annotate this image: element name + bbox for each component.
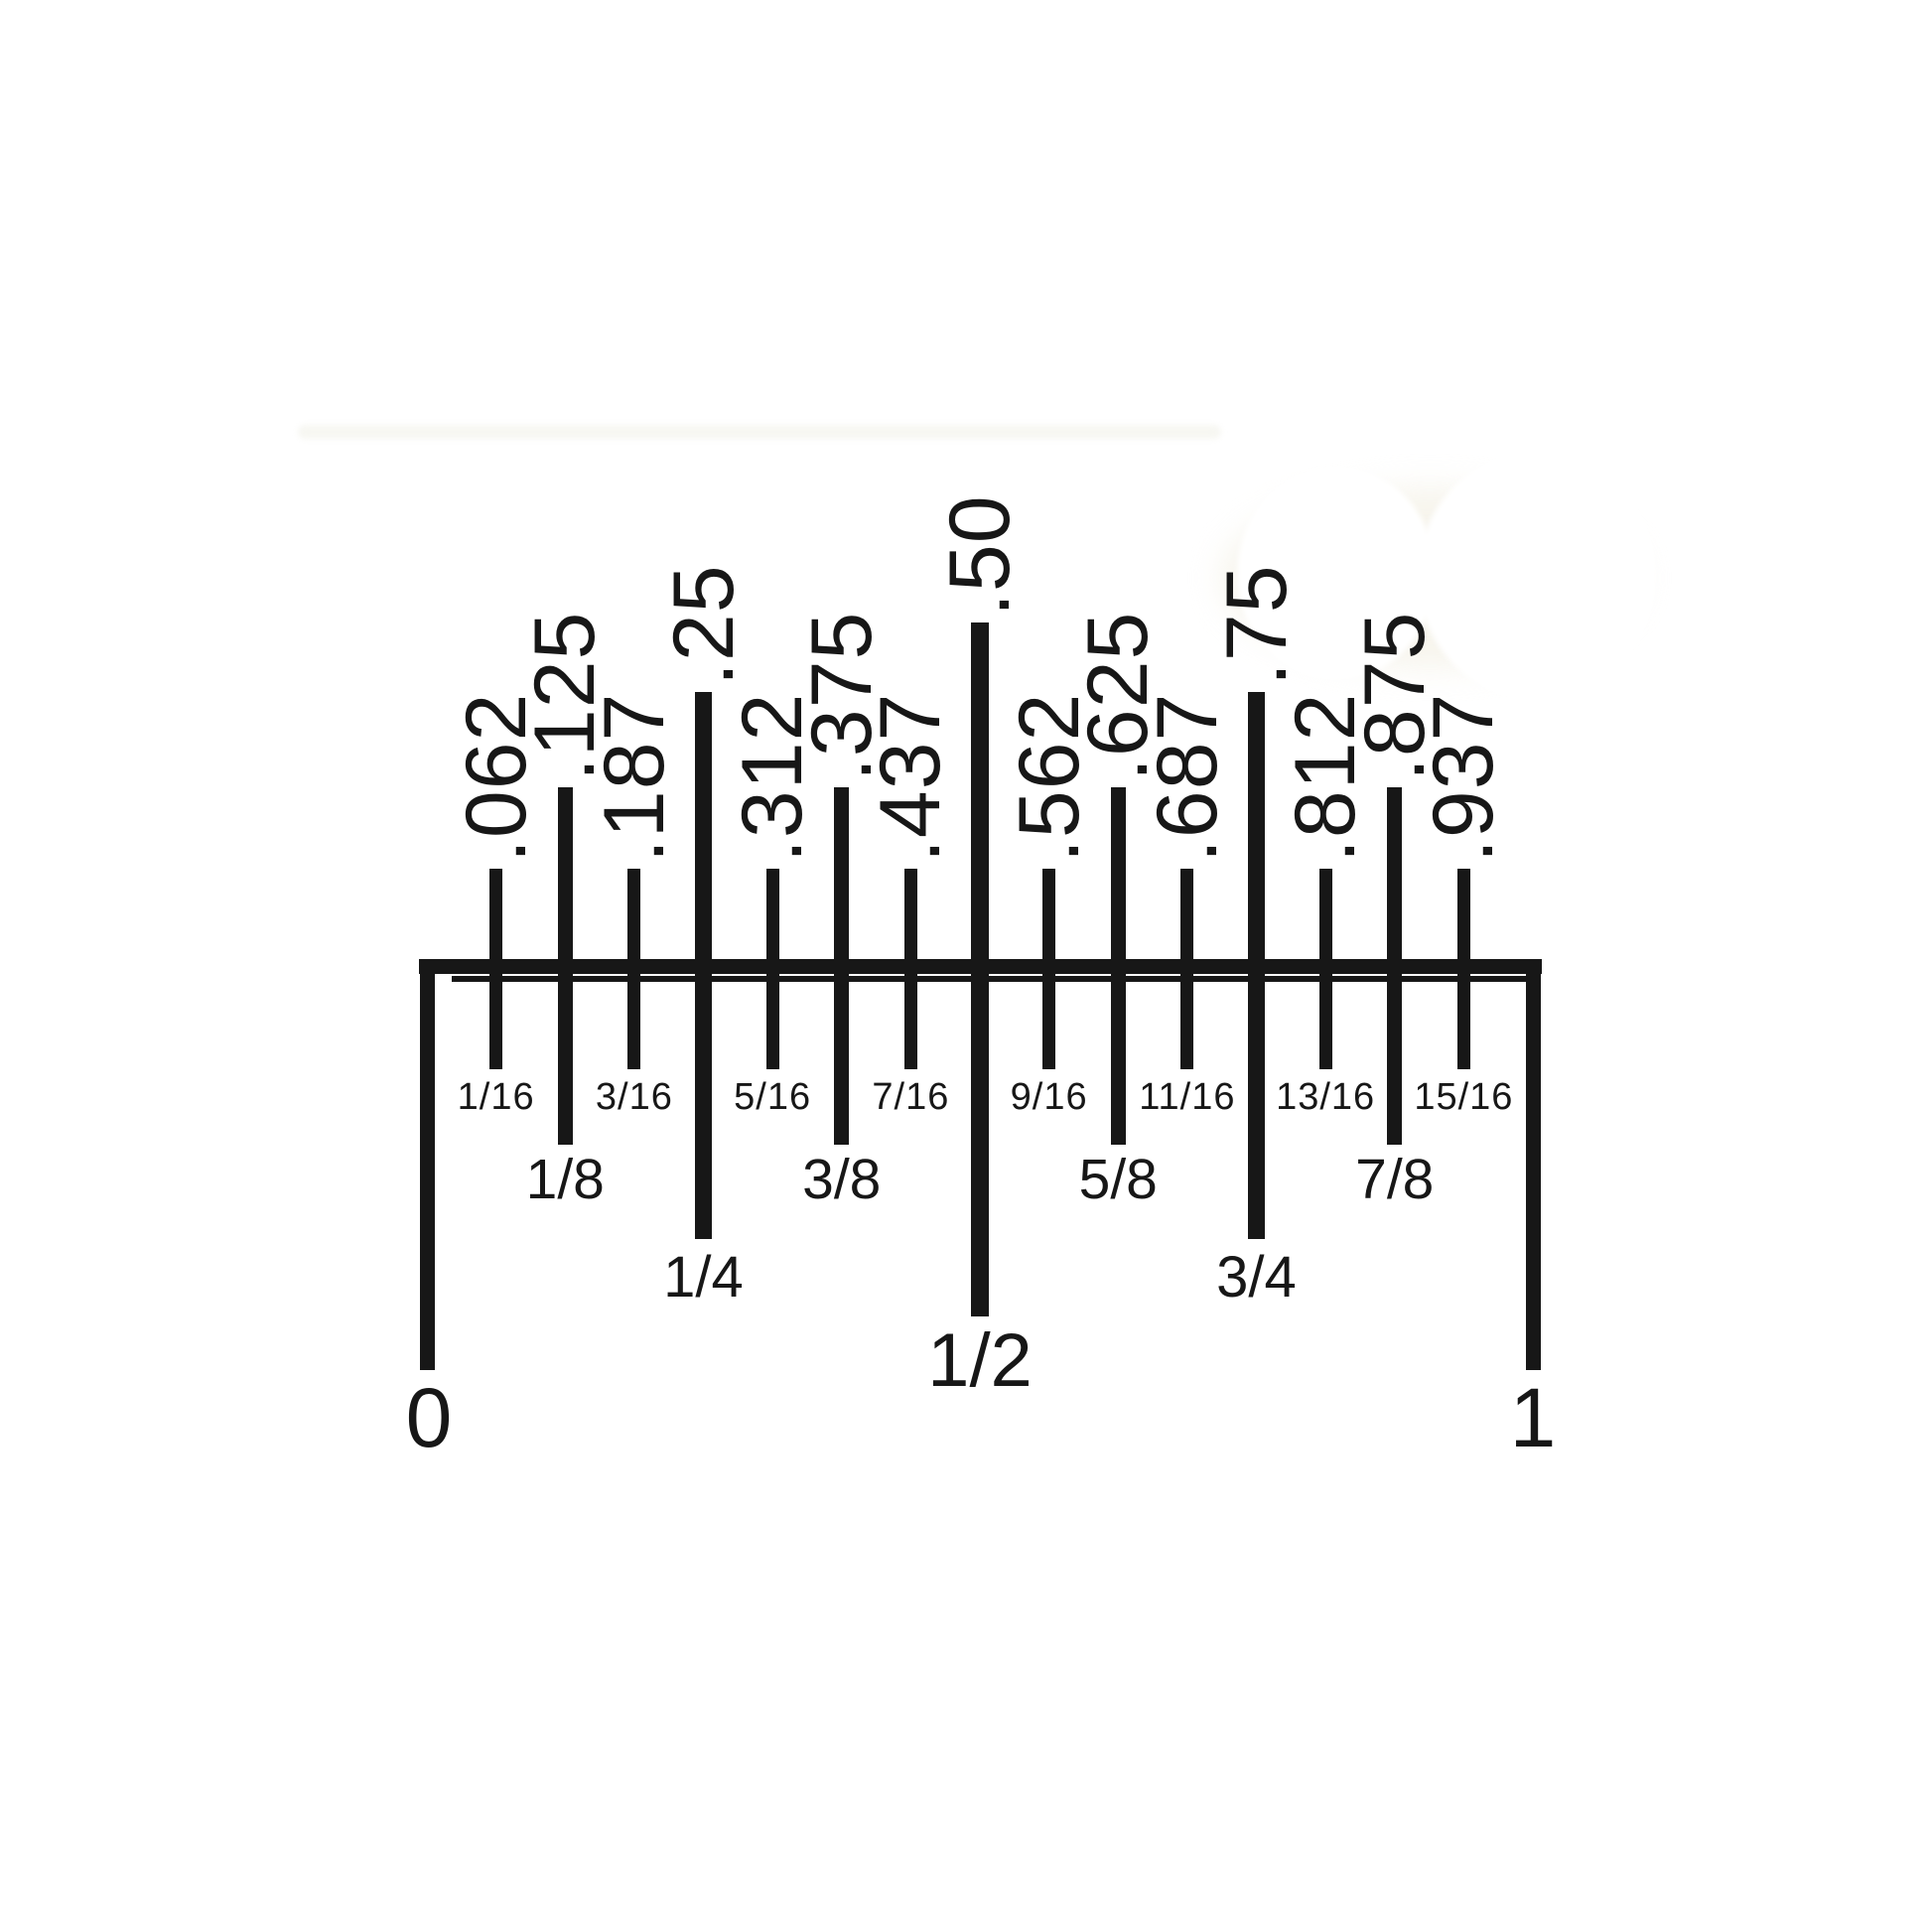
fraction-label-11-16: 11/16 — [1139, 1078, 1235, 1116]
scan-artifact-strip — [298, 425, 1221, 439]
fraction-label-13-16: 13/16 — [1276, 1078, 1375, 1116]
decimal-label-1-4: .25 — [661, 564, 747, 686]
end-line-right — [1526, 959, 1541, 1370]
tick-1-16 — [489, 869, 502, 1069]
decimal-label-3-16: .187 — [592, 693, 677, 863]
fraction-label-5-8: 5/8 — [1079, 1152, 1158, 1208]
fraction-label-15-16: 15/16 — [1414, 1078, 1513, 1116]
scale-start-label: 0 — [406, 1376, 453, 1459]
fraction-label-9-16: 9/16 — [1011, 1078, 1088, 1116]
tick-5-8 — [1111, 787, 1126, 1145]
fraction-label-1-2: 1/2 — [927, 1323, 1033, 1399]
tick-3-16 — [627, 869, 640, 1069]
tick-1-8 — [558, 787, 573, 1145]
fraction-label-1-16: 1/16 — [458, 1078, 535, 1116]
fraction-label-7-16: 7/16 — [872, 1078, 949, 1116]
tick-13-16 — [1319, 869, 1332, 1069]
ruler-baseline-double-stroke — [452, 976, 1532, 982]
tick-7-16 — [904, 869, 917, 1069]
tick-7-8 — [1387, 787, 1402, 1145]
end-line-left — [420, 959, 435, 1370]
fraction-label-7-8: 7/8 — [1355, 1152, 1434, 1208]
tick-5-16 — [766, 869, 779, 1069]
tick-3-4 — [1248, 692, 1265, 1239]
fraction-label-1-8: 1/8 — [526, 1152, 605, 1208]
fraction-label-3-4: 3/4 — [1216, 1249, 1297, 1307]
scale-end-label: 1 — [1510, 1376, 1557, 1459]
fraction-label-5-16: 5/16 — [734, 1078, 811, 1116]
fraction-label-3-16: 3/16 — [596, 1078, 673, 1116]
decimal-label-15-16: .937 — [1421, 693, 1506, 863]
scan-artifact-cloud — [1418, 452, 1656, 700]
tick-9-16 — [1042, 869, 1055, 1069]
tick-1-4 — [695, 692, 712, 1239]
decimal-label-7-16: .437 — [868, 693, 953, 863]
fraction-label-1-4: 1/4 — [663, 1249, 744, 1307]
fraction-label-3-8: 3/8 — [802, 1152, 881, 1208]
tick-15-16 — [1457, 869, 1470, 1069]
ruler-diagram: 0 1 .0621/16.1251/8.1873/16.251/4.3125/1… — [0, 0, 1932, 1932]
decimal-label-1-2: .50 — [937, 494, 1023, 617]
tick-11-16 — [1180, 869, 1193, 1069]
decimal-label-11-16: .687 — [1145, 693, 1230, 863]
decimal-label-3-4: .75 — [1214, 564, 1300, 686]
tick-3-8 — [834, 787, 849, 1145]
tick-1-2 — [971, 622, 989, 1316]
